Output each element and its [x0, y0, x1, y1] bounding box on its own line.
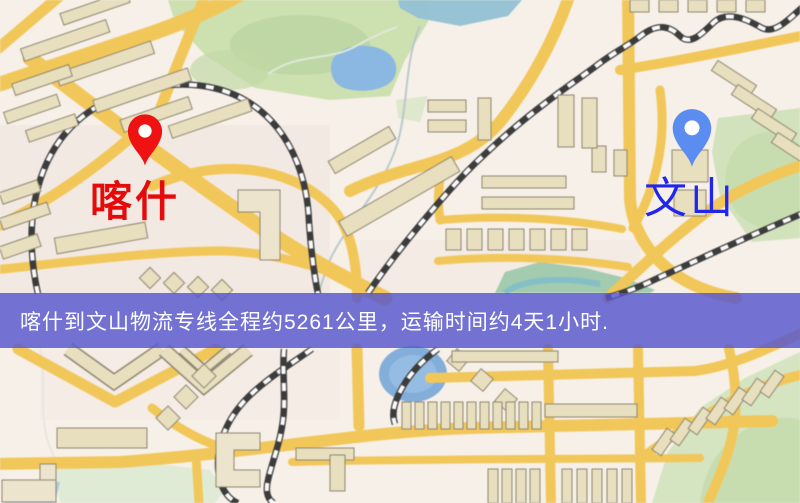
route-info-text: 喀什到文山物流专线全程约5261公里，运输时间约4天1小时.: [20, 306, 609, 336]
origin-label: 喀什: [90, 181, 180, 223]
pin-body: [673, 109, 712, 167]
pin-hole: [685, 120, 700, 135]
destination-marker[interactable]: [669, 108, 715, 168]
map-pin-icon: [669, 108, 715, 168]
route-info-banner: 喀什到文山物流专线全程约5261公里，运输时间约4天1小时.: [0, 293, 800, 348]
pin-hole: [138, 124, 151, 137]
pin-body: [128, 114, 162, 165]
map-pin-icon: [126, 112, 164, 168]
map-screenshot: 喀什 文山 喀什到文山物流专线全程约5261公里，运输时间约4天1小时.: [0, 0, 800, 503]
origin-marker[interactable]: [126, 112, 164, 168]
destination-label: 文山: [644, 178, 736, 221]
map-canvas: [0, 0, 800, 503]
